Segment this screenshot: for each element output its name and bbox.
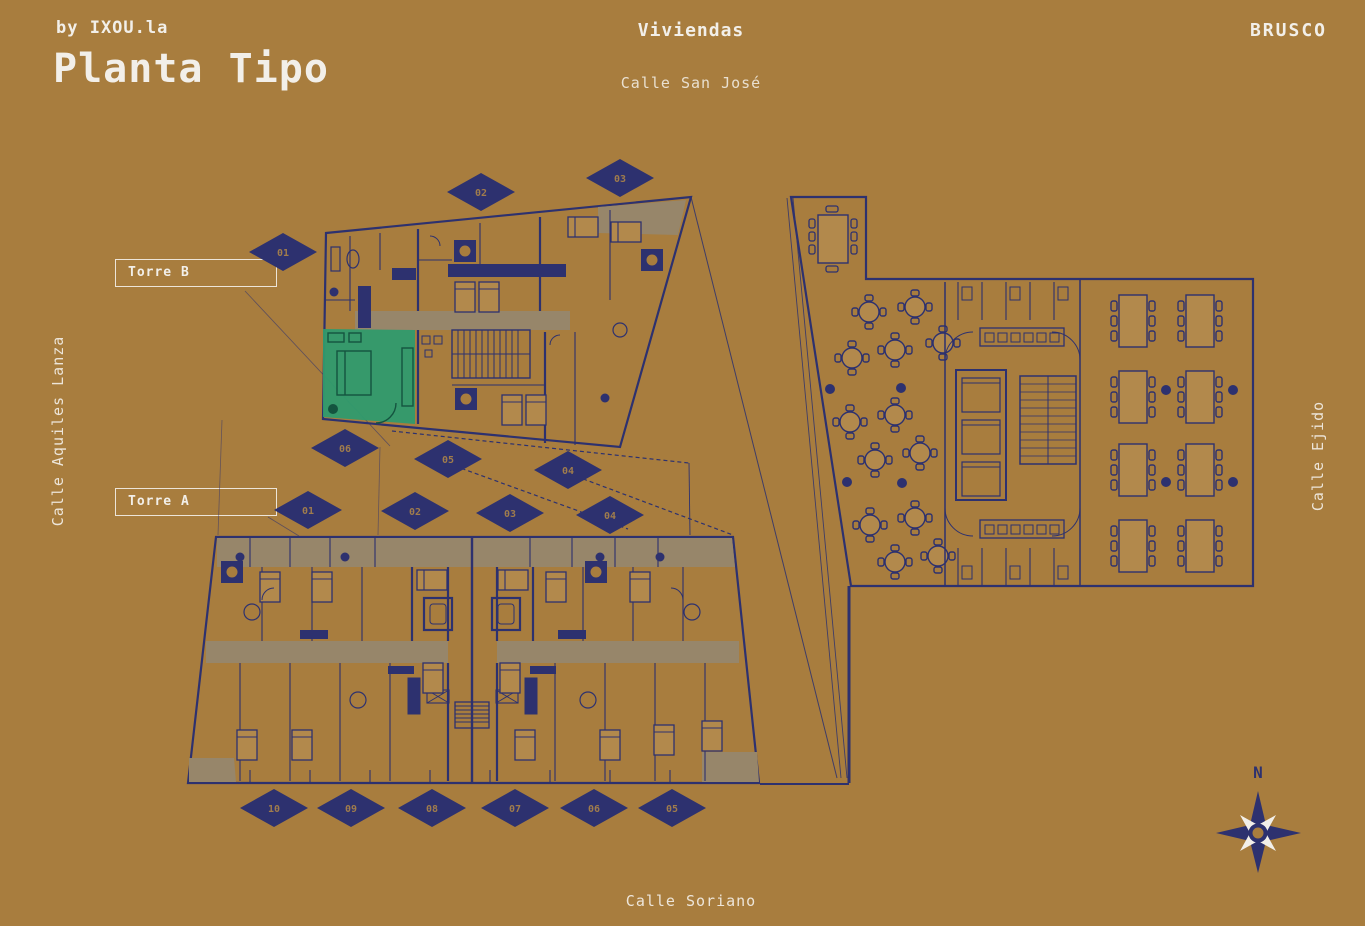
unit-marker-b-04[interactable]: 04 (534, 451, 602, 489)
svg-text:02: 02 (409, 507, 421, 518)
svg-text:08: 08 (426, 804, 438, 815)
highlighted-unit[interactable] (323, 329, 415, 424)
svg-text:07: 07 (509, 804, 521, 815)
unit-marker-b-03[interactable]: 03 (586, 159, 654, 197)
compass-hub (1251, 826, 1266, 841)
amenities-long-table (809, 206, 857, 272)
svg-text:10: 10 (268, 804, 280, 815)
cafe-tables (833, 290, 960, 579)
svg-text:06: 06 (588, 804, 600, 815)
unit-marker-a-07[interactable]: 07 (481, 789, 549, 827)
svg-text:02: 02 (475, 188, 487, 199)
unit-marker-b-06[interactable]: 06 (311, 429, 379, 467)
torre-a-plan (188, 537, 759, 783)
svg-text:03: 03 (614, 174, 626, 185)
amenities-core (945, 279, 1080, 586)
floor-plan-canvas: 01 02 03 06 05 04 01 02 (0, 0, 1365, 926)
floor-plan-page: by IXOU.la Planta Tipo Viviendas Calle S… (0, 0, 1365, 926)
unit-marker-a-05[interactable]: 05 (638, 789, 706, 827)
unit-marker-a-01[interactable]: 01 (274, 491, 342, 529)
svg-text:09: 09 (345, 804, 357, 815)
unit-marker-a-04[interactable]: 04 (576, 496, 644, 534)
torre-b-stairs (452, 330, 530, 378)
unit-marker-a-10[interactable]: 10 (240, 789, 308, 827)
unit-marker-a-06[interactable]: 06 (560, 789, 628, 827)
torre-b-core-wall (448, 264, 566, 277)
unit-marker-b-01[interactable]: 01 (249, 233, 317, 271)
svg-text:05: 05 (666, 804, 678, 815)
compass-north-label: N (1253, 763, 1263, 782)
unit-marker-b-02[interactable]: 02 (447, 173, 515, 211)
svg-text:01: 01 (302, 506, 314, 517)
compass-rose: N (1216, 763, 1301, 873)
unit-marker-a-08[interactable]: 08 (398, 789, 466, 827)
coworking-tables (1111, 295, 1222, 572)
unit-marker-a-09[interactable]: 09 (317, 789, 385, 827)
svg-text:04: 04 (562, 466, 574, 477)
svg-text:03: 03 (504, 509, 516, 520)
structural-columns (825, 383, 1238, 488)
unit-marker-a-03[interactable]: 03 (476, 494, 544, 532)
svg-text:04: 04 (604, 511, 616, 522)
svg-text:06: 06 (339, 444, 351, 455)
svg-text:05: 05 (442, 455, 454, 466)
amenities-plan (791, 197, 1253, 586)
torre-b-plan (323, 197, 691, 447)
svg-text:01: 01 (277, 248, 289, 259)
unit-marker-a-02[interactable]: 02 (381, 492, 449, 530)
